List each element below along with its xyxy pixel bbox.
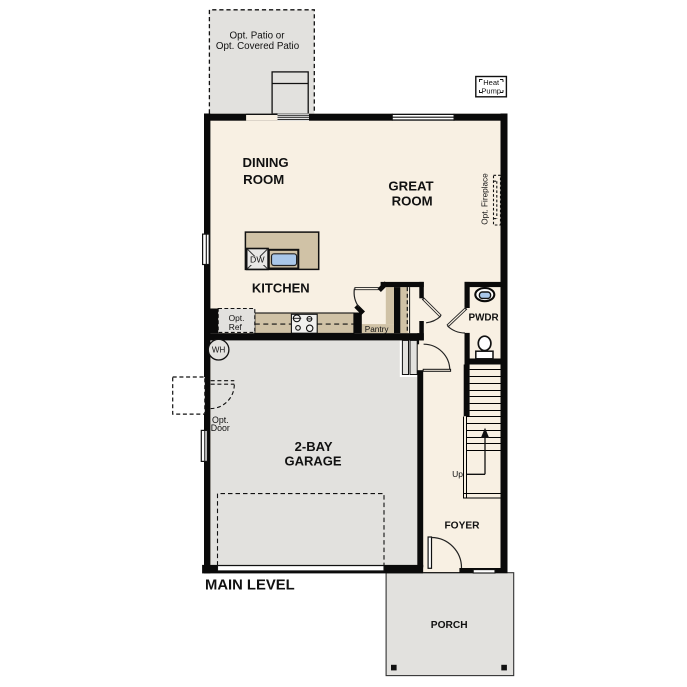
svg-text:Opt. Covered Patio: Opt. Covered Patio [216,41,300,52]
svg-text:Opt. Fireplace: Opt. Fireplace [480,173,489,225]
svg-text:ROOM: ROOM [392,194,433,209]
svg-text:Pump: Pump [481,86,501,95]
svg-text:PWDR: PWDR [469,313,499,324]
svg-text:DW: DW [250,255,265,265]
svg-text:Ref: Ref [229,322,243,332]
svg-text:WH: WH [212,346,226,355]
svg-text:ROOM: ROOM [243,172,284,187]
svg-text:Up: Up [452,469,463,479]
svg-text:Pantry: Pantry [365,325,390,334]
svg-text:FOYER: FOYER [444,521,480,532]
svg-text:KITCHEN: KITCHEN [252,280,310,295]
svg-text:GARAGE: GARAGE [284,454,341,469]
svg-text:MAIN LEVEL: MAIN LEVEL [205,578,295,594]
svg-text:2-BAY: 2-BAY [295,439,333,454]
svg-text:PORCH: PORCH [431,620,468,631]
svg-text:GREAT: GREAT [388,179,433,194]
svg-text:Door: Door [211,423,230,433]
svg-text:DINING: DINING [243,155,289,170]
